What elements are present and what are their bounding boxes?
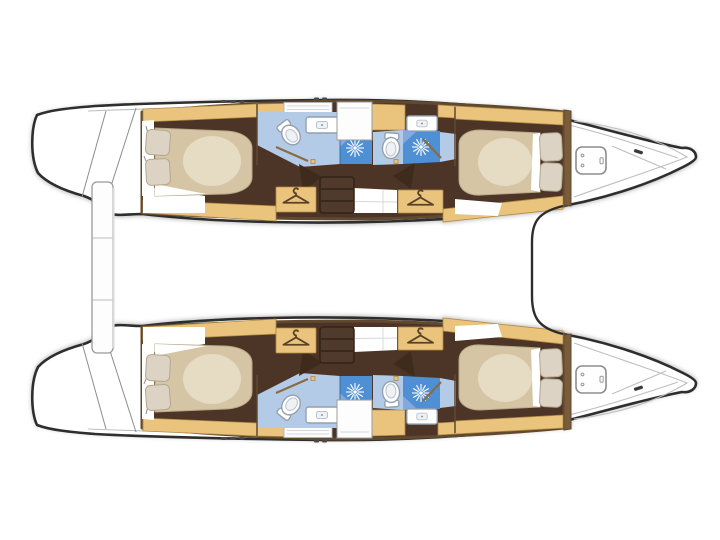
forward-bridgedeck-edge <box>532 206 563 334</box>
hull-bottom <box>32 317 696 442</box>
aft-crossbeam-platform <box>92 182 114 353</box>
floor-plan-canvas <box>0 0 720 540</box>
catamaran-floor-plan <box>0 0 720 540</box>
hull-top <box>32 98 696 223</box>
